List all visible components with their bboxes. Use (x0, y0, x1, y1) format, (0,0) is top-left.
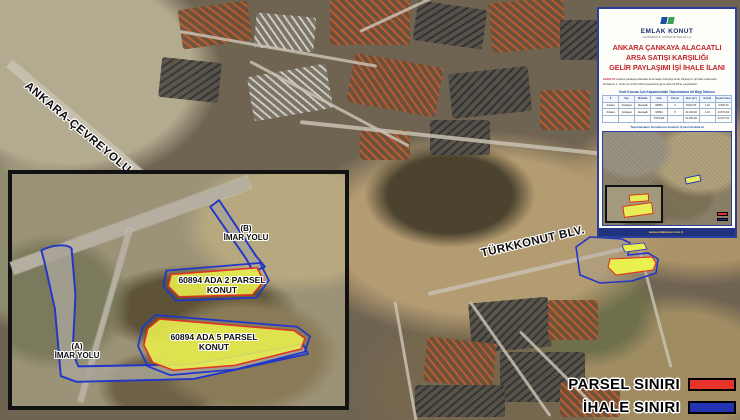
tender-boundary-swatch (688, 401, 736, 414)
panel-minimap (602, 131, 732, 226)
urban-cluster (488, 0, 567, 53)
urban-cluster (448, 66, 532, 119)
ring-road-label: ANKARA-ÇEVREYOLU (22, 80, 133, 176)
panel-footer: www.emlakkonut.com.tr (599, 228, 735, 236)
urban-cluster (423, 336, 497, 388)
urban-cluster (415, 385, 505, 417)
parcel-2-main (622, 243, 647, 252)
footer-site: www.emlakkonut.com.tr (649, 231, 683, 234)
announcement-bullets: EKGYO Ankara Çankaya Alacaatlı Arsa Satı… (602, 77, 732, 87)
emlak-konut-logo-icon (661, 17, 674, 24)
minimap-legend (717, 212, 728, 221)
road-a-label: (A) İMAR YOLU (42, 342, 112, 360)
brand-tagline: GAYRİMENKUL YATIRIM ORTAKLIĞI A.Ş. (602, 37, 732, 40)
parcel-boundary-label: PARSEL SINIRI (568, 376, 680, 393)
map-canvas: ANKARA-ÇEVREYOLU TÜRKKONUT BLV. (B) İMAR… (0, 0, 740, 420)
urban-cluster (560, 20, 600, 60)
urban-cluster (330, 0, 410, 45)
urban-cluster (247, 63, 334, 121)
parcel-5-label: 60894 ADA 5 PARSEL KONUT (156, 333, 272, 353)
tender-boundary-label: İHALE SINIRI (583, 399, 680, 416)
map-legend: PARSEL SINIRI İHALE SINIRI (568, 376, 736, 416)
inset-map: (B) İMAR YOLU 60894 ADA 2 PARSEL KONUT 6… (8, 170, 349, 410)
minimap-caption: Taşınmazların Konumunu Gösterir Uydu Gör… (602, 125, 732, 129)
info-table: İlİlçeMahalleAdaParselAlan (m²)Emsalİnşa… (602, 95, 732, 123)
legend-row-tender: İHALE SINIRI (583, 399, 736, 416)
parcel-boundary-swatch (688, 378, 736, 391)
announcement-title: ANKARA ÇANKAYA ALACAATLI ARSA SATIŞI KAR… (602, 43, 732, 73)
main-map-parcel-overlay (570, 233, 670, 293)
urban-cluster (548, 300, 598, 340)
urban-cluster (413, 0, 488, 49)
road-b-label: (B) İMAR YOLU (208, 224, 284, 242)
brand-block: EMLAK KONUT GAYRİMENKUL YATIRIM ORTAKLIĞ… (602, 12, 732, 39)
minimap-parcel (684, 174, 701, 184)
urban-cluster (540, 90, 590, 130)
urban-cluster (158, 57, 222, 103)
parcel-2-label: 60894 ADA 2 PARSEL KONUT (170, 276, 274, 296)
minimap-inset-frame (605, 185, 663, 223)
legend-row-parcel: PARSEL SINIRI (568, 376, 736, 393)
info-table-title: İhale Konusu İşin Kapsamındaki Taşınmazl… (602, 90, 732, 94)
bullet-line: İhalenin 1. Oturumu 23.01.2024 Çarşamba … (603, 82, 731, 87)
brand-name: EMLAK KONUT (602, 29, 732, 36)
announcement-panel: EMLAK KONUT GAYRİMENKUL YATIRIM ORTAKLIĞ… (597, 7, 737, 238)
